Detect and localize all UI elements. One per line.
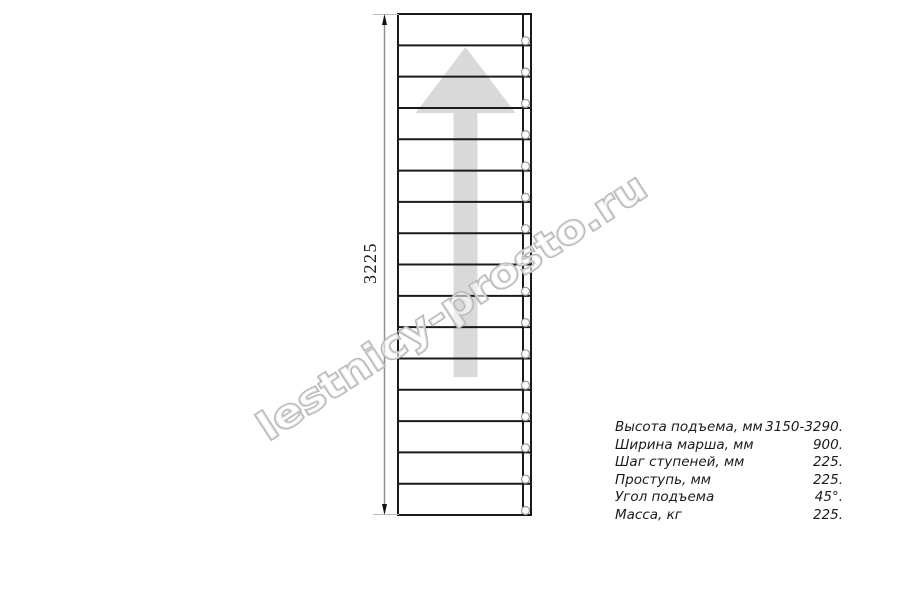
fastener-circle bbox=[522, 319, 530, 327]
watermark-text: lestnicy-prosto.ru bbox=[249, 165, 655, 451]
fastener-circle bbox=[522, 68, 530, 76]
spec-label: Высота подъема, мм bbox=[615, 419, 763, 437]
fastener-circle bbox=[522, 99, 530, 107]
fastener-circle bbox=[522, 287, 530, 295]
spec-row: Угол подъема45°. bbox=[615, 489, 843, 507]
spec-row: Ширина марша, мм900. bbox=[615, 437, 843, 455]
fastener-circle bbox=[522, 131, 530, 139]
spec-label: Шаг ступеней, мм bbox=[615, 454, 744, 472]
spec-table: Высота подъема, мм3150-3290.Ширина марша… bbox=[615, 419, 843, 524]
fastener-circle bbox=[522, 381, 530, 389]
spec-row: Высота подъема, мм3150-3290. bbox=[615, 419, 843, 437]
spec-label: Проступь, мм bbox=[615, 472, 711, 490]
fastener-circle bbox=[522, 350, 530, 358]
fastener-circle bbox=[522, 193, 530, 201]
spec-value: 45°. bbox=[815, 489, 843, 507]
dimension-label: 3225 bbox=[360, 242, 380, 284]
spec-label: Угол подъема bbox=[615, 489, 714, 507]
fastener-circle bbox=[522, 475, 530, 483]
fastener-circle bbox=[522, 162, 530, 170]
height-dimension: 3225 bbox=[360, 14, 399, 515]
spec-value: 3150-3290. bbox=[765, 419, 843, 437]
spec-label: Масса, кг bbox=[615, 507, 682, 525]
spec-value: 225. bbox=[813, 507, 843, 525]
dimension-arrowhead-top bbox=[382, 14, 387, 25]
spec-row: Масса, кг225. bbox=[615, 507, 843, 525]
spec-value: 225. bbox=[813, 454, 843, 472]
stair-drawing-page: 3225 lestnicy-prosto.ru Высота подъема, … bbox=[0, 0, 900, 600]
dimension-arrowhead-bottom bbox=[382, 504, 387, 515]
spec-value: 225. bbox=[813, 472, 843, 490]
fastener-circle bbox=[522, 444, 530, 452]
fastener-circle bbox=[522, 413, 530, 421]
spec-label: Ширина марша, мм bbox=[615, 437, 754, 455]
spec-row: Проступь, мм225. bbox=[615, 472, 843, 490]
fastener-circle bbox=[522, 507, 530, 515]
spec-value: 900. bbox=[813, 437, 843, 455]
fastener-circle bbox=[522, 37, 530, 45]
spec-row: Шаг ступеней, мм225. bbox=[615, 454, 843, 472]
